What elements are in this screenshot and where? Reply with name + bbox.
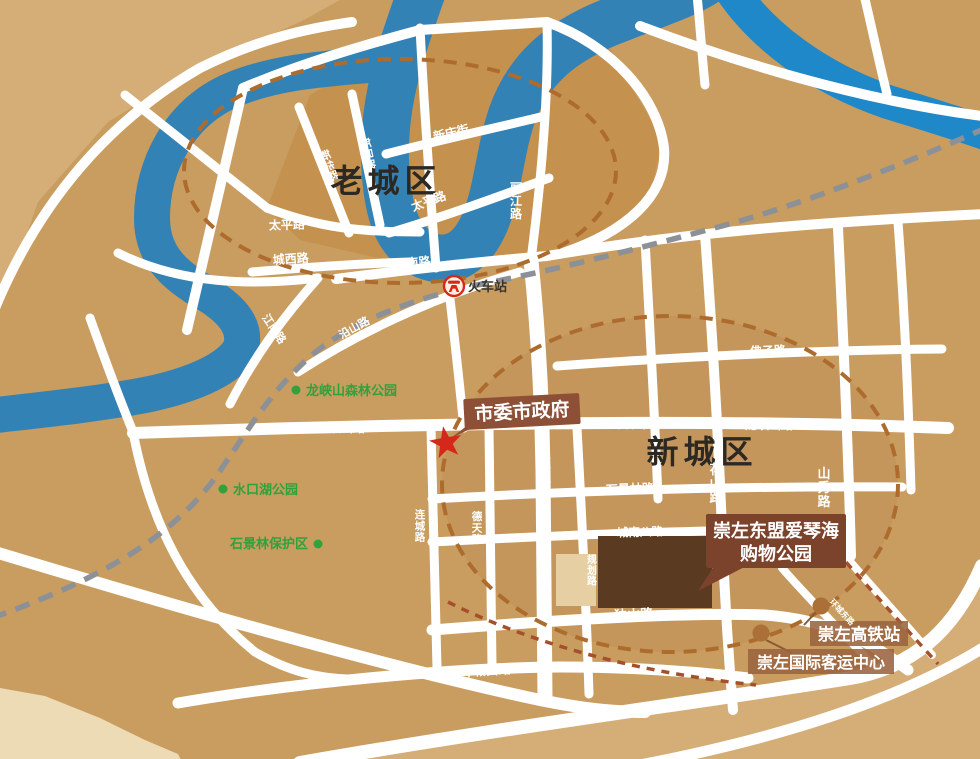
road-label-longxiashan-east: 龙峡山路 (745, 417, 794, 432)
road-label-huashan: 花山路 (709, 462, 723, 505)
district-old-city: 老城区 (330, 163, 441, 199)
forest-park-dot (292, 386, 301, 395)
passenger-center-dot (753, 625, 770, 642)
hsr-station-label: 崇左高铁站 (818, 624, 901, 644)
road-label-shanxiu: 山秀路 (816, 466, 831, 509)
forest-park-label: 龙峡山森林公园 (306, 383, 397, 398)
hsr-station-dot (813, 598, 830, 615)
road-label-taiping-horizontal: 太平路 (269, 216, 307, 232)
road-label-shijinglin: 石景林路 (605, 480, 655, 497)
shopping-park-label-line1: 崇左东盟爱琴海 (713, 520, 839, 541)
shopping-park-block (598, 536, 712, 608)
shuikou-park-label: 水口湖公园 (233, 482, 298, 497)
road-label-lijiang: 丽江路 (510, 181, 523, 221)
road-label-fozi: 佛子路 (749, 342, 788, 358)
road-label-longxiashan-west: 龙峡山路 (317, 420, 366, 435)
road-label-liancheng: 连城路 (415, 508, 426, 544)
shopping-park-label-line2: 购物公园 (740, 543, 812, 564)
passenger-center-label: 崇左国际客运中心 (757, 653, 885, 672)
train-station-icon-bar (448, 281, 460, 284)
district-new-city: 新城区 (646, 434, 757, 470)
train-station-label: 火车站 (468, 279, 507, 294)
road-label-chengxi: 城西路 (272, 250, 310, 268)
road-label-longxiashan-mid: 龙峡山路 (610, 416, 659, 431)
road-label-dushan: 独山路 (614, 606, 655, 623)
shijinglin-reserve-dot (314, 540, 323, 549)
road-label-youyi: 友谊大道 (537, 454, 551, 515)
road-label-detian: 德天路 (471, 510, 483, 546)
road-label-guihua: 规划路 (587, 553, 598, 588)
city-map: 火车站 市委市政府 崇左东盟爱琴海 购物公园 崇左高铁站 崇左国际客运中心 龙峡… (0, 0, 980, 759)
shijinglin-reserve-label: 石景林保护区 (229, 536, 308, 551)
shuikou-park-dot (219, 485, 228, 494)
road-liancheng (431, 428, 437, 668)
road-detian (489, 428, 492, 667)
train-station-icon (444, 276, 464, 296)
